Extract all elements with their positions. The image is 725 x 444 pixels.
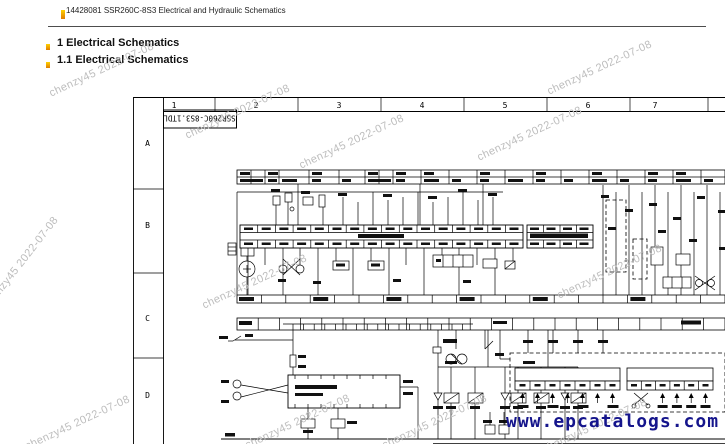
subsection-accent-marker: [46, 62, 50, 68]
grid-row-label: D: [145, 391, 150, 400]
schematic-grid-frame: [133, 97, 725, 444]
header-accent-marker: [61, 10, 65, 19]
grid-row-labels: A B C D: [145, 139, 150, 400]
watermark: chenzy45 2022-07-08: [47, 40, 155, 99]
title-block-text: SSR260C-8S3.1TDL: [163, 114, 236, 123]
schematic-wiring: [219, 170, 725, 444]
section-heading: 1 Electrical Schematics: [57, 37, 179, 49]
grid-row-label: C: [145, 314, 150, 323]
grid-row-label: A: [145, 139, 150, 148]
site-url-watermark: www.epcatalogs.com: [506, 411, 719, 432]
grid-column-label: 7: [653, 101, 658, 110]
header-rule: [48, 26, 706, 27]
section-accent-marker: [46, 44, 50, 50]
watermark: chenzy45 2022-07-08: [23, 393, 131, 444]
watermark: chenzy45 2022-07-08: [0, 214, 61, 311]
schematic-canvas: 1 2 3 4 5 6 7 A B C D SSR260C-8S3.1TDL I…: [133, 97, 725, 444]
grid-column-label: 4: [420, 101, 425, 110]
subsection-heading: 1.1 Electrical Schematics: [57, 54, 188, 66]
grid-column-label: 3: [337, 101, 342, 110]
document-header-title: 14428081 SSR260C-8S3 Electrical and Hydr…: [66, 6, 286, 15]
grid-column-labels: 1 2 3 4 5 6 7: [172, 101, 658, 110]
grid-column-label: 1: [172, 101, 177, 110]
grid-column-label: 2: [254, 101, 259, 110]
grid-column-label: 6: [586, 101, 591, 110]
grid-column-label: 5: [503, 101, 508, 110]
watermark: chenzy45 2022-07-08: [545, 38, 653, 97]
pdf-page: 14428081 SSR260C-8S3 Electrical and Hydr…: [0, 0, 725, 444]
grid-row-label: B: [145, 221, 150, 230]
